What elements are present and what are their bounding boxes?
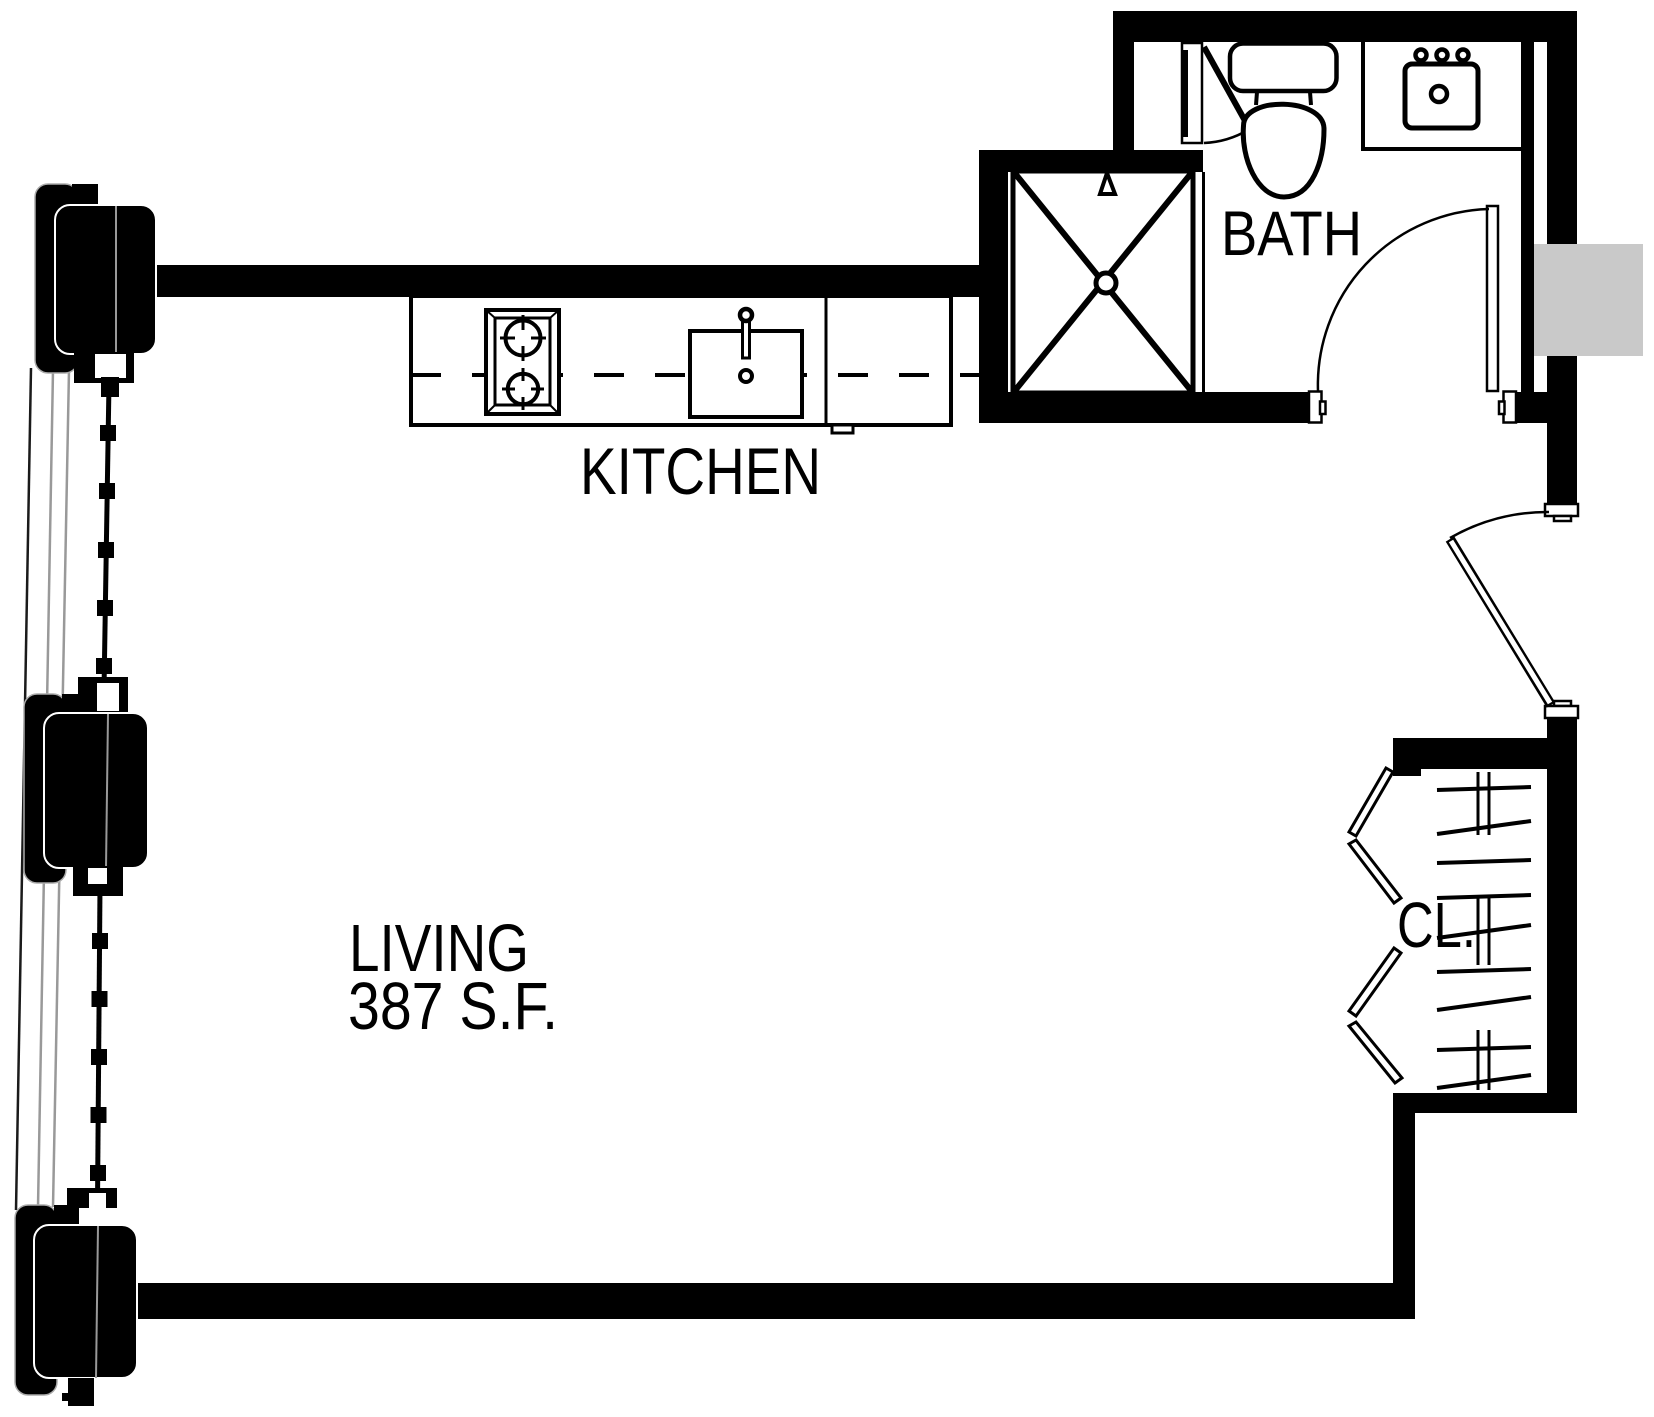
- svg-text:CL.: CL.: [1397, 889, 1476, 961]
- svg-text:BATH: BATH: [1221, 199, 1362, 269]
- svg-text:387 S.F.: 387 S.F.: [348, 969, 558, 1044]
- svg-text:KITCHEN: KITCHEN: [580, 434, 821, 508]
